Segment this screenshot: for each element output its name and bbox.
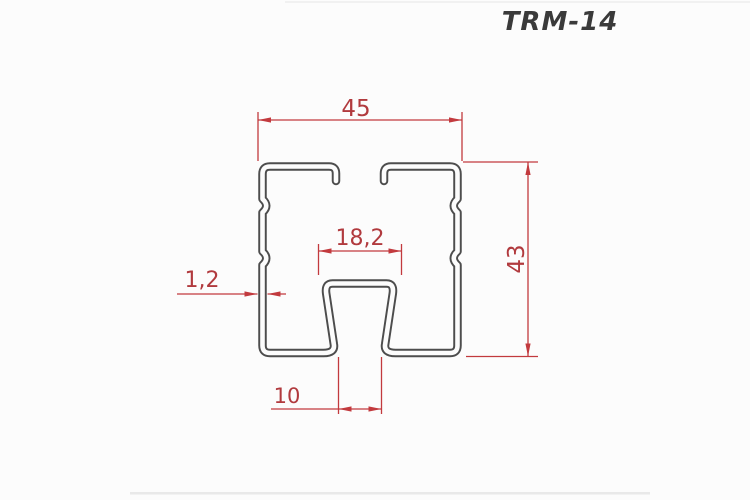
arrowhead-right: [389, 248, 402, 253]
dimension-overall-height: 43: [463, 162, 538, 357]
profile-diagram-svg: 45 43 18,2 1,2: [0, 0, 750, 500]
dimension-slot-opening: 10: [271, 357, 382, 414]
dimension-label-wall-thickness: 1,2: [185, 268, 220, 293]
dimension-label-overall-width: 45: [341, 96, 370, 122]
dimension-label-slot-opening: 10: [274, 384, 301, 408]
dimension-channel-top-width: 18,2: [319, 226, 402, 275]
top-hairline: [285, 1, 750, 3]
profile-outline: [263, 167, 458, 354]
dimension-wall-thickness: 1,2: [177, 268, 286, 297]
arrowhead-left: [268, 291, 281, 296]
arrowhead-right: [449, 117, 462, 122]
profile-outline-core: [263, 167, 458, 354]
arrowhead-right: [245, 291, 258, 296]
profile-cross-section: [263, 167, 458, 354]
drawing-canvas: TRM-14 45 43: [0, 0, 750, 500]
arrowhead-up: [525, 162, 530, 175]
arrowhead-left: [258, 117, 271, 122]
dimension-label-channel-top-width: 18,2: [336, 226, 385, 251]
dimension-overall-width: 45: [258, 96, 462, 161]
arrowhead-left: [339, 406, 352, 411]
bottom-hairline: [130, 492, 650, 495]
arrowhead-down: [525, 344, 530, 357]
dimension-label-overall-height: 43: [504, 244, 530, 273]
arrowhead-right: [369, 406, 382, 411]
arrowhead-left: [319, 248, 332, 253]
